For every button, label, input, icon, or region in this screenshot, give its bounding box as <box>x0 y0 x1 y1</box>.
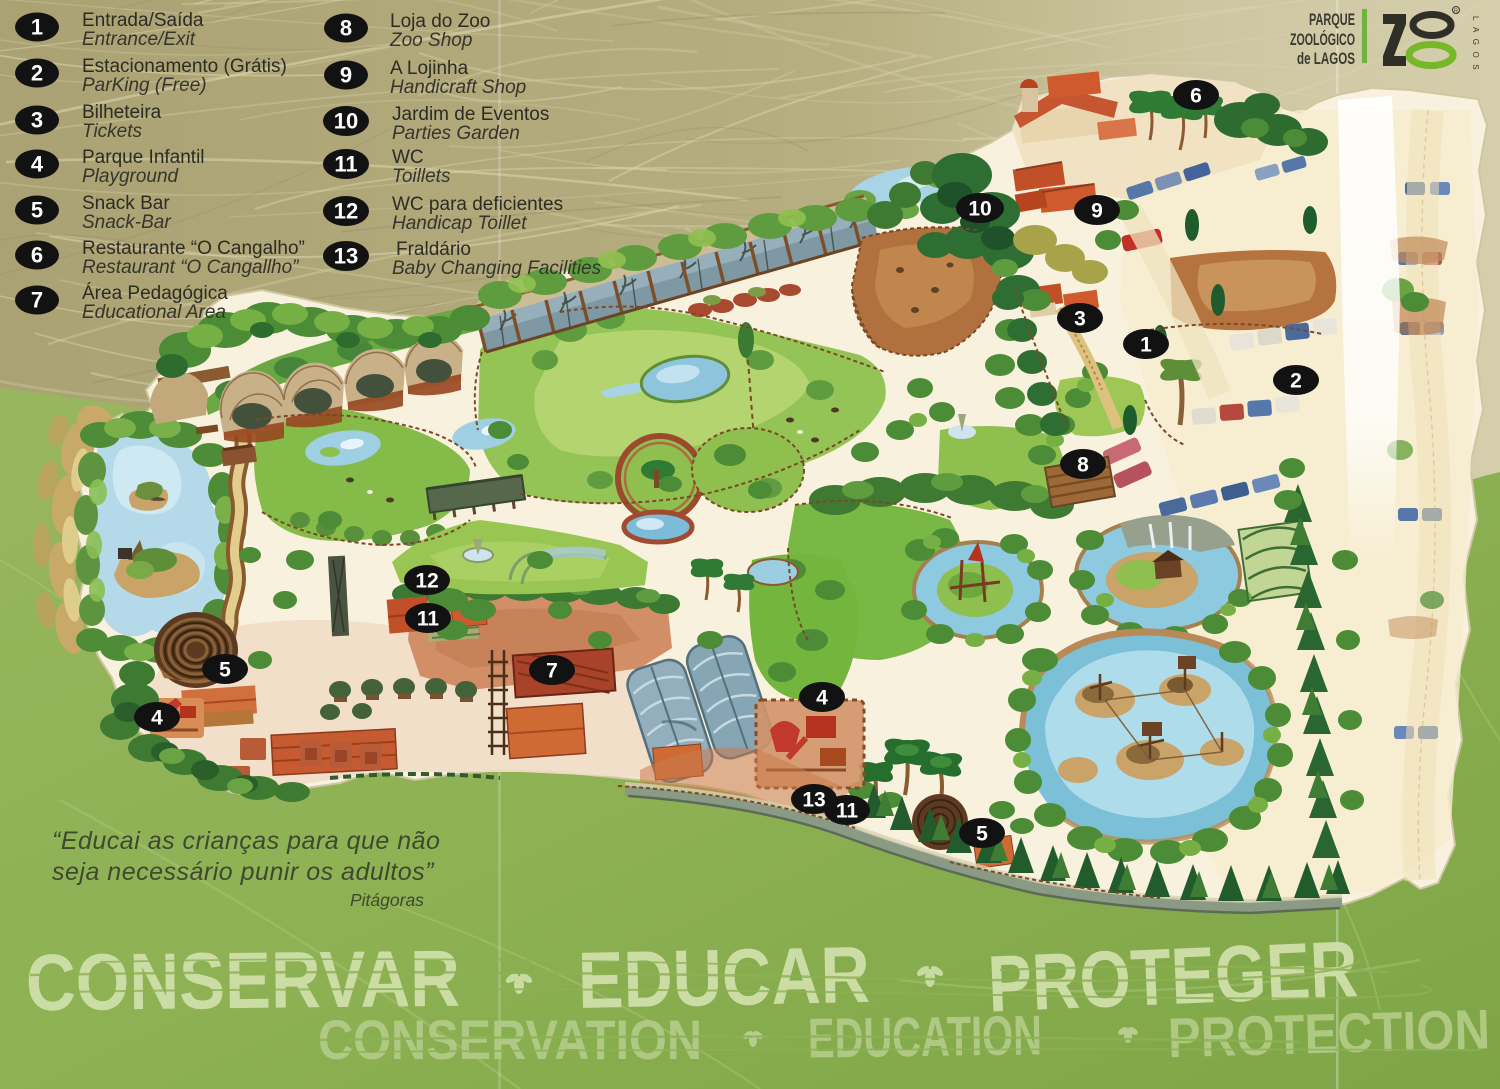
svg-text:9: 9 <box>1091 200 1103 223</box>
svg-text:Handicap Toillet: Handicap Toillet <box>392 213 527 234</box>
svg-text:Zoo Shop: Zoo Shop <box>389 30 472 51</box>
svg-text:Toillets: Toillets <box>392 166 451 187</box>
svg-text:12: 12 <box>415 570 438 593</box>
svg-text:WC para deficientes: WC para deficientes <box>392 194 563 215</box>
svg-text:Entrada/Saída: Entrada/Saída <box>82 10 204 31</box>
svg-text:6: 6 <box>1190 85 1202 108</box>
svg-text:Parque Infantil: Parque Infantil <box>82 147 205 168</box>
svg-text:10: 10 <box>334 109 358 134</box>
svg-text:1: 1 <box>31 15 43 40</box>
svg-text:4: 4 <box>816 687 828 710</box>
svg-text:3: 3 <box>1074 308 1086 331</box>
svg-text:2: 2 <box>1290 370 1302 393</box>
svg-text:de LAGOS: de LAGOS <box>1297 50 1355 68</box>
svg-text:3: 3 <box>31 108 43 133</box>
svg-text:8: 8 <box>340 16 352 41</box>
svg-text:Loja do Zoo: Loja do Zoo <box>390 11 490 32</box>
svg-text:7: 7 <box>546 660 558 683</box>
svg-text:11: 11 <box>836 800 859 823</box>
svg-text:Snack-Bar: Snack-Bar <box>82 212 171 233</box>
svg-text:LAGOS: LAGOS <box>1471 16 1480 76</box>
svg-text:11: 11 <box>334 152 357 177</box>
svg-text:Educational Area: Educational Area <box>82 302 226 323</box>
svg-text:8: 8 <box>1077 454 1089 477</box>
svg-text:Snack Bar: Snack Bar <box>82 193 170 214</box>
svg-text:Fraldário: Fraldário <box>396 239 471 260</box>
svg-text:1: 1 <box>1140 334 1152 357</box>
svg-text:Jardim de Eventos: Jardim de Eventos <box>392 104 549 125</box>
svg-text:12: 12 <box>334 199 358 224</box>
svg-text:Entrance/Exit: Entrance/Exit <box>82 29 196 50</box>
svg-text:Pitágoras: Pitágoras <box>350 890 424 910</box>
svg-text:Estacionamento (Grátis): Estacionamento (Grátis) <box>82 56 287 77</box>
svg-text:WC: WC <box>392 147 424 168</box>
svg-text:10: 10 <box>968 198 991 221</box>
svg-text:PROTECTION: PROTECTION <box>1167 997 1491 1069</box>
svg-text:7: 7 <box>31 288 43 313</box>
svg-text:Restaurante “O Cangalho”: Restaurante “O Cangalho” <box>82 238 305 259</box>
svg-text:Bilheteira: Bilheteira <box>82 102 162 123</box>
svg-text:13: 13 <box>334 244 358 269</box>
svg-text:4: 4 <box>151 707 163 730</box>
svg-text:Tickets: Tickets <box>82 121 143 142</box>
svg-text:9: 9 <box>340 63 352 88</box>
svg-text:4: 4 <box>31 152 44 177</box>
svg-text:5: 5 <box>31 198 43 223</box>
svg-text:Playground: Playground <box>82 166 180 187</box>
svg-text:Área Pedagógica: Área Pedagógica <box>82 283 228 304</box>
svg-text:“Educai as crianças para que n: “Educai as crianças para que não <box>52 827 440 855</box>
svg-text:ParKing (Free): ParKing (Free) <box>82 75 207 96</box>
svg-text:Baby Changing Facilities: Baby Changing Facilities <box>392 258 602 279</box>
svg-text:5: 5 <box>219 659 231 682</box>
svg-text:Parties Garden: Parties Garden <box>392 123 520 144</box>
svg-text:Handicraft Shop: Handicraft Shop <box>390 77 526 98</box>
svg-text:6: 6 <box>31 243 43 268</box>
svg-text:seja necessário punir os adult: seja necessário punir os adultos” <box>52 858 435 886</box>
svg-text:2: 2 <box>31 61 43 86</box>
svg-text:13: 13 <box>802 789 825 812</box>
svg-text:R: R <box>1454 9 1458 15</box>
svg-text:11: 11 <box>417 608 440 631</box>
svg-text:A Lojinha: A Lojinha <box>390 58 469 79</box>
svg-text:PARQUE: PARQUE <box>1309 11 1355 29</box>
svg-text:Restaurant “O Cangallho”: Restaurant “O Cangallho” <box>82 257 300 278</box>
svg-text:ZOOLÓGICO: ZOOLÓGICO <box>1290 30 1355 49</box>
svg-text:5: 5 <box>976 823 988 846</box>
